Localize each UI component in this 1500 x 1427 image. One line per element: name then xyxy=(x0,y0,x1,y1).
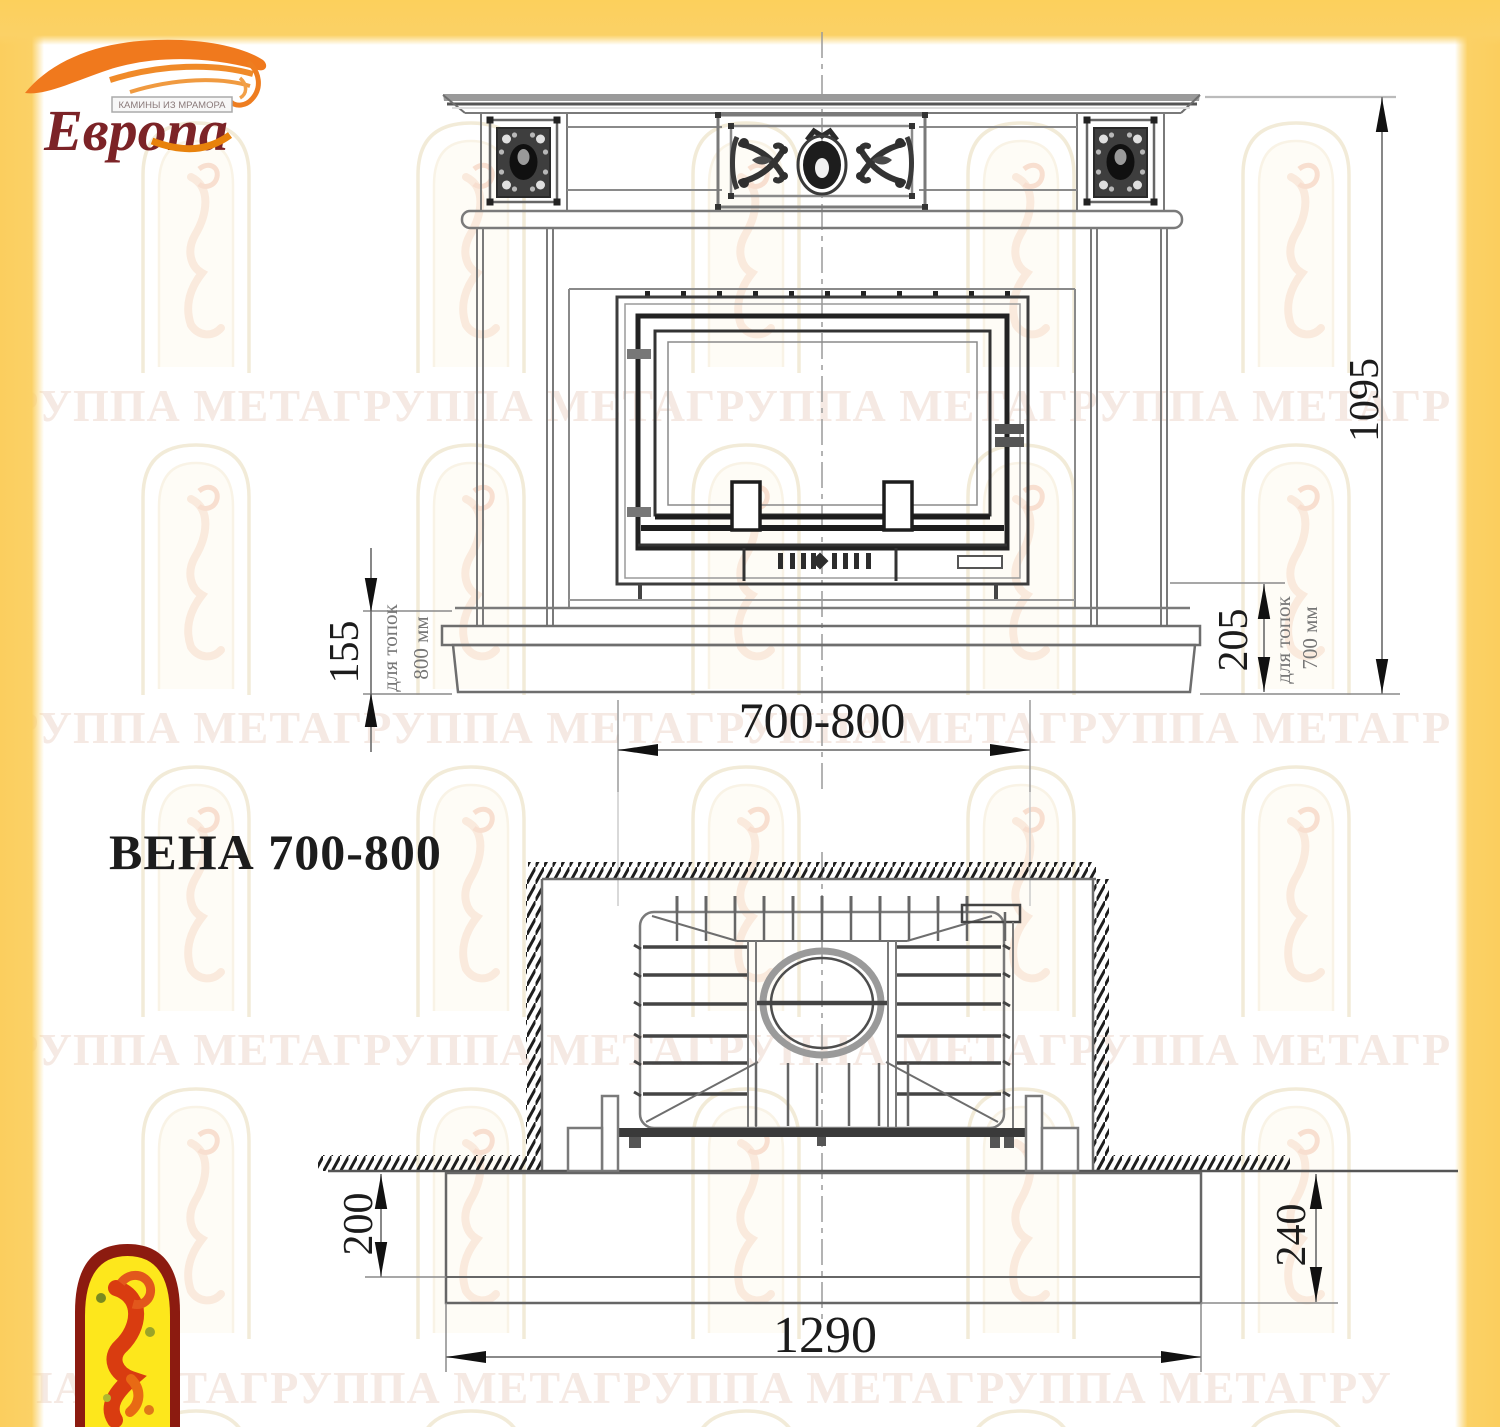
svg-text:ГРУППА МЕТАГРУППА МЕТАГРУППА М: ГРУППА МЕТАГРУППА МЕТАГРУППА МЕТАГРУППА … xyxy=(0,702,1451,753)
svg-text:ППА МЕТАГРУППА МЕТАГРУППА МЕТА: ППА МЕТАГРУППА МЕТАГРУППА МЕТАГРУППА МЕТ… xyxy=(0,1362,1392,1413)
svg-text:для топок: для топок xyxy=(1271,595,1295,683)
svg-text:700-800: 700-800 xyxy=(739,692,906,748)
svg-text:ГРУППА МЕТАГРУППА МЕТАГРУППА М: ГРУППА МЕТАГРУППА МЕТАГРУППА МЕТАГРУППА … xyxy=(0,380,1451,431)
svg-text:240: 240 xyxy=(1269,1204,1315,1267)
svg-text:для топок: для топок xyxy=(378,603,402,691)
svg-text:155: 155 xyxy=(322,621,368,684)
svg-text:800 мм: 800 мм xyxy=(409,616,433,679)
svg-text:Европа: Европа xyxy=(43,98,228,163)
svg-text:700 мм: 700 мм xyxy=(1298,606,1322,669)
svg-text:205: 205 xyxy=(1211,609,1257,672)
svg-text:ВЕНА 700-800: ВЕНА 700-800 xyxy=(109,824,442,880)
svg-text:ГРУППА МЕТАГРУППА МЕТАГРУППА М: ГРУППА МЕТАГРУППА МЕТАГРУППА МЕТАГРУППА … xyxy=(0,1024,1451,1075)
svg-text:200: 200 xyxy=(336,1193,382,1256)
svg-text:1290: 1290 xyxy=(773,1307,877,1364)
svg-text:1095: 1095 xyxy=(1342,358,1388,442)
